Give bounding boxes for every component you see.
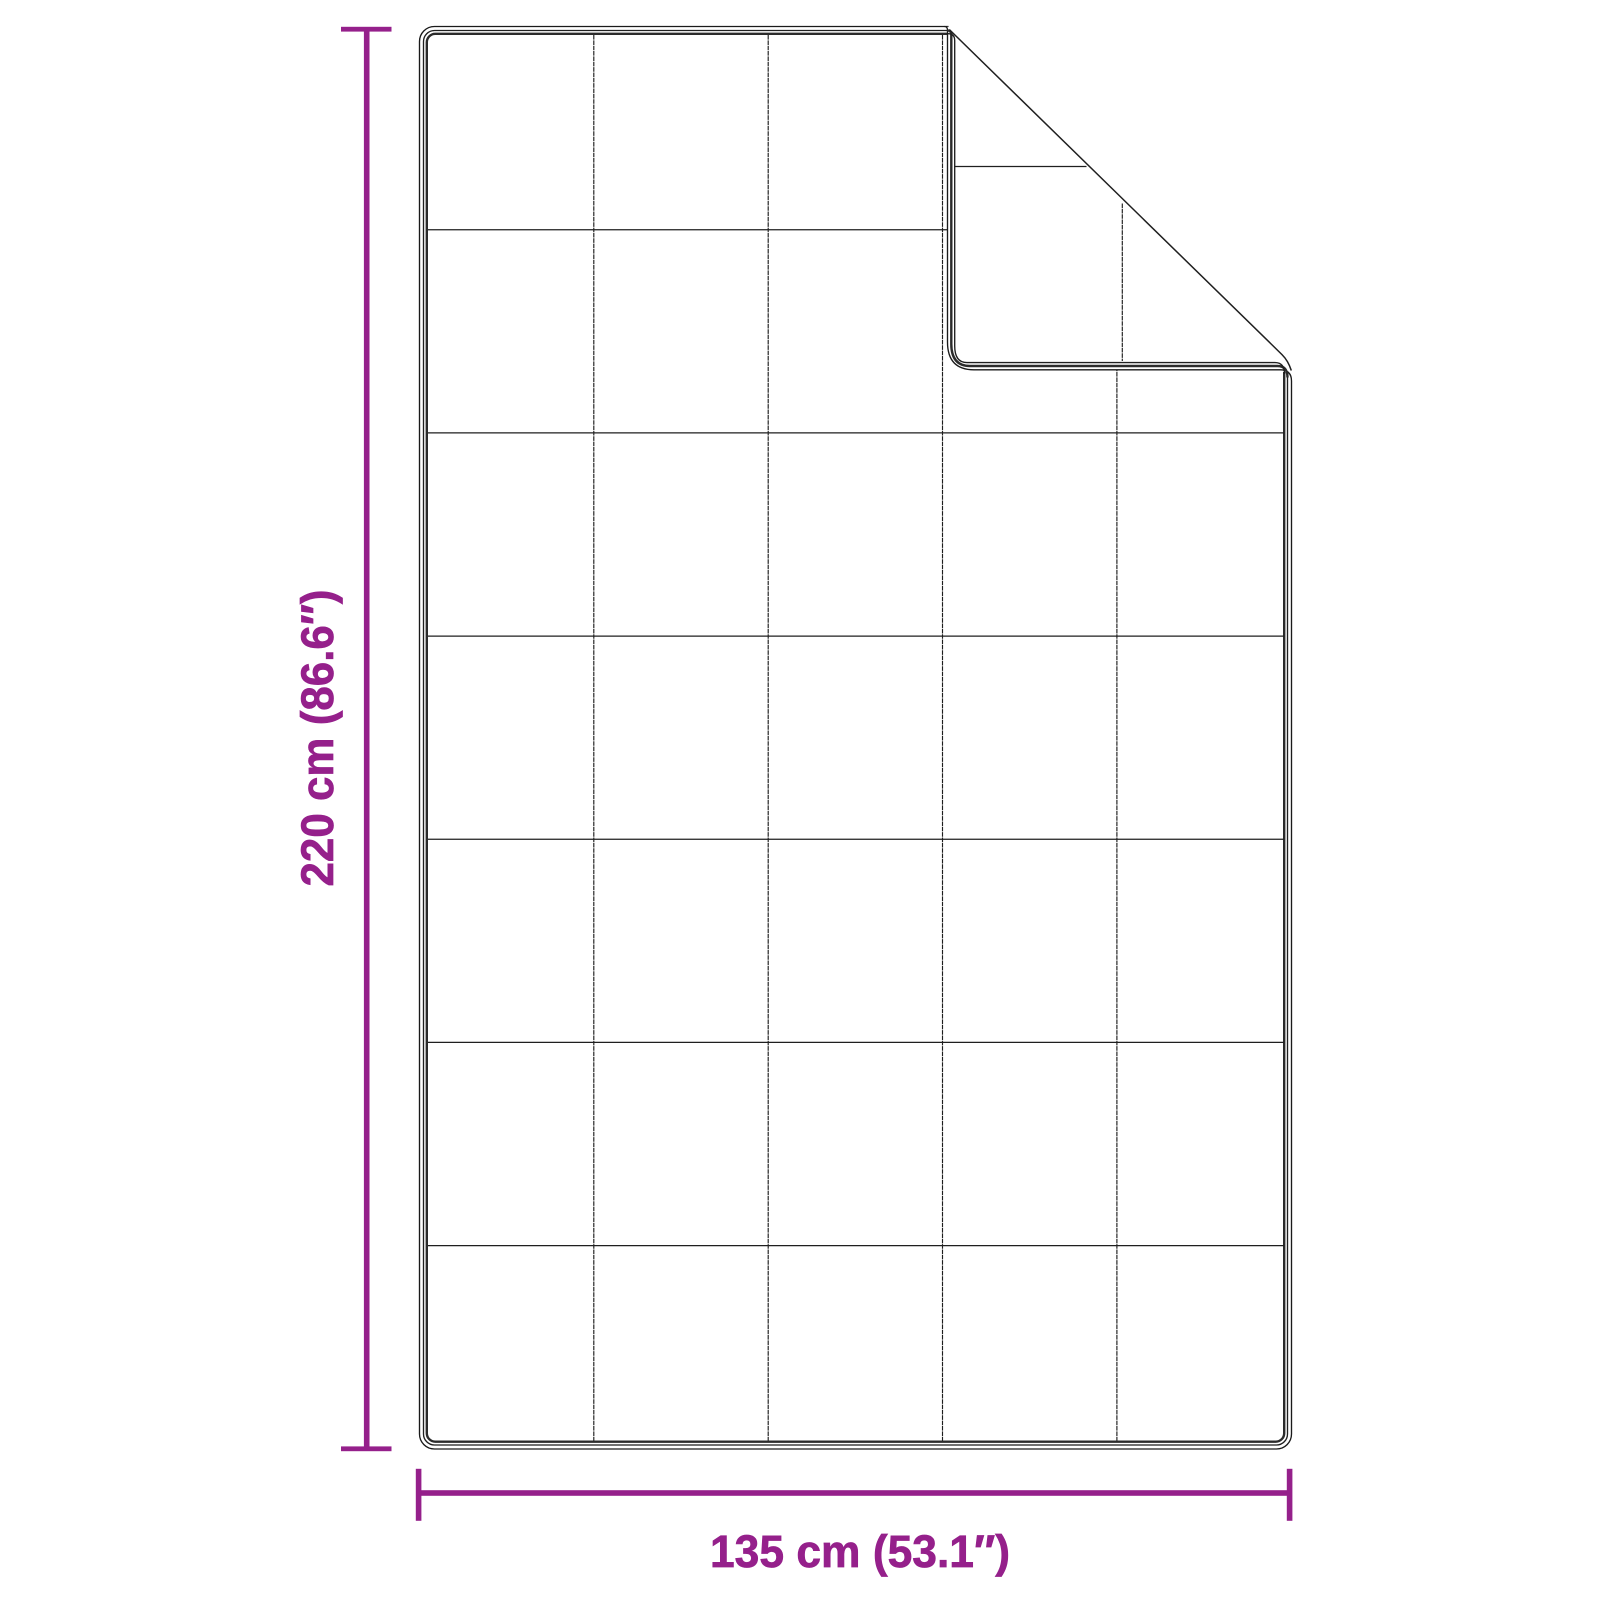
svg-text:135 cm (53.1″): 135 cm (53.1″) (710, 1526, 1010, 1577)
svg-text:220 cm (86.6″): 220 cm (86.6″) (292, 590, 343, 887)
